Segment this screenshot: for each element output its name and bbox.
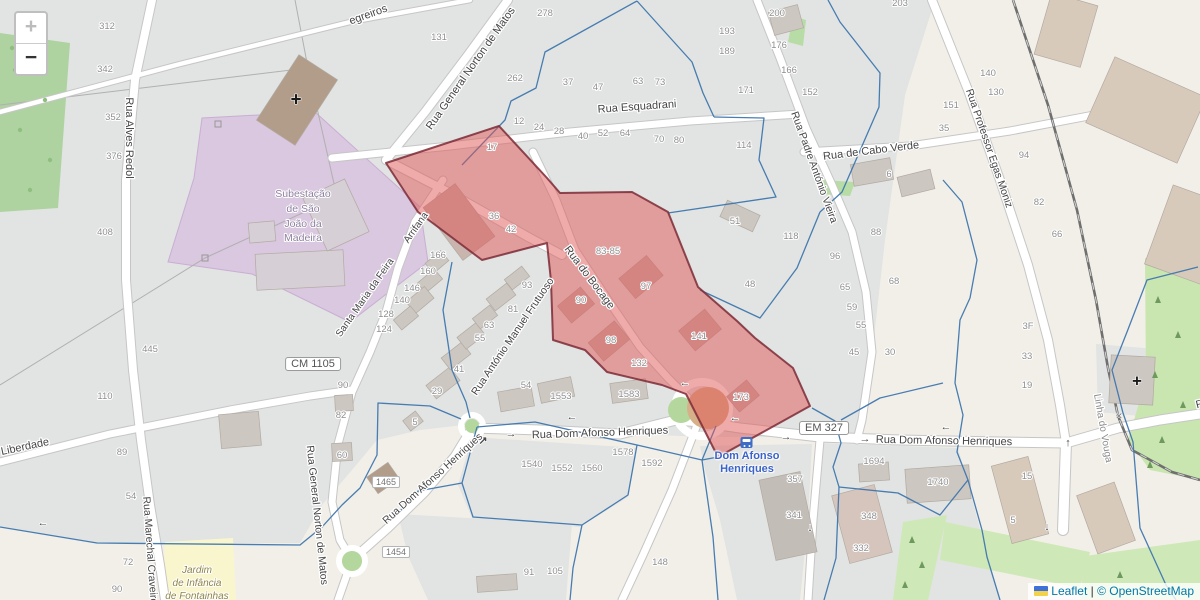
house-number: 36	[489, 211, 500, 222]
house-number: 146	[404, 283, 420, 294]
oneway-arrow-icon: →	[506, 428, 517, 440]
leaflet-link[interactable]: Leaflet	[1051, 584, 1087, 598]
house-number: 189	[719, 46, 735, 57]
house-number: 128	[378, 309, 394, 320]
house-number: 173	[733, 392, 749, 403]
house-number: 41	[454, 364, 465, 375]
street-name-label: Rua Dom Afonso Henriques	[876, 434, 1013, 448]
house-number: 73	[655, 77, 666, 88]
oneway-arrow-icon: ←	[38, 517, 49, 529]
oneway-arrow-icon: →	[860, 433, 871, 445]
orchard-tree-icon	[43, 98, 47, 102]
house-number: 65	[840, 282, 851, 293]
house-number: 47	[593, 82, 604, 93]
oneway-arrow-icon: ↓	[807, 522, 813, 534]
house-number: 332	[853, 543, 869, 554]
house-number: 82	[1034, 197, 1045, 208]
house-number: 45	[849, 347, 860, 358]
house-number: 1694	[863, 456, 884, 467]
house-number: 160	[420, 266, 436, 277]
house-number: 48	[745, 279, 756, 290]
house-number: 37	[563, 77, 574, 88]
house-number: 60	[337, 450, 348, 461]
house-number: 66	[1052, 229, 1063, 240]
oneway-arrow-icon: ←	[941, 421, 952, 433]
building	[219, 411, 262, 448]
house-number: 54	[126, 491, 137, 502]
house-number: 110	[97, 391, 112, 402]
house-number: 6	[886, 169, 891, 180]
route-badge-em327: EM 327	[799, 421, 849, 435]
house-number: 176	[771, 40, 787, 51]
house-number: 166	[781, 65, 797, 76]
building	[255, 250, 345, 291]
station-name-line1: Dom Afonso	[715, 450, 780, 463]
house-number: 89	[117, 447, 128, 458]
house-number: 33	[1022, 351, 1033, 362]
house-number: 118	[783, 231, 798, 242]
building	[476, 574, 517, 593]
oneway-arrow-icon: ←	[730, 412, 741, 424]
house-number: 114	[736, 140, 751, 151]
house-number: 5	[1010, 515, 1015, 526]
roundabout-island	[342, 551, 362, 571]
house-number: 88	[871, 227, 882, 238]
oneway-arrow-icon: ↑	[1065, 437, 1071, 449]
house-number: 80	[674, 135, 685, 146]
house-number: 28	[554, 126, 565, 137]
house-number: 193	[719, 26, 735, 37]
ukraine-flag-icon	[1034, 586, 1048, 596]
attribution-bar: Leaflet | © OpenStreetMap	[1028, 583, 1200, 600]
substation-name-label: Madeira	[284, 232, 322, 244]
house-number: 82	[336, 410, 347, 421]
house-number: 1552	[551, 463, 572, 474]
house-number: 68	[889, 276, 900, 287]
house-number: 342	[97, 64, 113, 75]
house-number: 200	[769, 8, 785, 19]
house-number: 131	[431, 32, 447, 43]
house-number: 278	[537, 8, 553, 19]
house-number: 130	[988, 87, 1004, 98]
house-number: 1560	[581, 463, 602, 474]
house-number: 1592	[641, 458, 662, 469]
osm-link[interactable]: © OpenStreetMap	[1097, 584, 1194, 598]
house-number: 1578	[612, 447, 633, 458]
house-number: 105	[547, 566, 563, 577]
kindergarten-name-label: Jardim	[181, 565, 212, 576]
house-number: 148	[652, 557, 668, 568]
route-badge-cm1105: CM 1105	[285, 357, 341, 371]
street-name-label: Rua Alves Redol	[123, 97, 135, 178]
house-number: 166	[430, 250, 446, 261]
address-plate-1454: 1454	[382, 546, 410, 558]
zoom-out-button[interactable]: −	[16, 44, 46, 74]
house-number: 1740	[927, 477, 948, 488]
train-icon	[741, 437, 753, 448]
house-number: 140	[394, 295, 410, 306]
kindergarten-name-label: de Fontainhas	[165, 591, 228, 600]
house-number: 12	[514, 116, 525, 127]
house-number: 262	[507, 73, 523, 84]
zoom-in-button[interactable]: +	[16, 13, 46, 44]
house-number: 132	[631, 358, 647, 369]
house-number: 348	[861, 511, 877, 522]
house-number: 81	[508, 304, 519, 315]
house-number: 55	[475, 333, 486, 344]
oneway-arrow-icon: ↓	[1044, 521, 1050, 533]
house-number: 40	[578, 131, 589, 142]
house-number: 3F	[1022, 321, 1033, 332]
house-number: 97	[641, 281, 652, 292]
house-number: 1553	[550, 391, 571, 402]
address-plate-1465: 1465	[372, 476, 400, 488]
house-number: 171	[738, 85, 754, 96]
church-cross-icon: +	[1132, 372, 1142, 391]
house-number: 1583	[618, 389, 639, 400]
house-number: 72	[123, 557, 134, 568]
house-number: 124	[376, 324, 392, 335]
attribution-separator: |	[1087, 584, 1097, 598]
house-number: 29	[432, 386, 443, 397]
house-number: 70	[654, 134, 665, 145]
building	[335, 395, 354, 412]
building	[248, 221, 276, 243]
house-number: 90	[576, 295, 587, 306]
map-canvas[interactable]: →←←←→→←↑↓↓↗←++✕Rua Alves RedolRua Genera…	[0, 0, 1200, 600]
map-app: →←←←→→←↑↓↓↗←++✕Rua Alves RedolRua Genera…	[0, 0, 1200, 600]
substation-name-label: de São	[286, 203, 319, 215]
house-number: 15	[1022, 471, 1033, 482]
house-number: 35	[939, 123, 950, 134]
house-number: 312	[99, 21, 115, 32]
house-number: 90	[112, 584, 123, 595]
oneway-arrow-icon: ←	[680, 377, 691, 389]
house-number: 63	[484, 320, 495, 331]
house-number: 341	[786, 510, 802, 521]
house-number: 140	[980, 68, 996, 79]
oneway-arrow-icon: →	[781, 431, 792, 443]
house-number: 152	[802, 87, 818, 98]
house-number: 94	[1019, 150, 1030, 161]
orchard-tree-icon	[48, 158, 52, 162]
house-number: 445	[142, 344, 158, 355]
house-number: 64	[620, 128, 631, 139]
house-number: 24	[534, 122, 545, 133]
road	[1063, 443, 1066, 530]
substation-name-label: Subestação	[275, 188, 331, 200]
house-number: 55	[856, 320, 867, 331]
house-number: 376	[106, 151, 122, 162]
house-number: 90	[338, 380, 349, 391]
house-number: 63	[633, 76, 644, 87]
house-number: 19	[1022, 380, 1033, 391]
house-number: 96	[830, 251, 841, 262]
house-number: 83-85	[596, 246, 620, 257]
kindergarten-name-label: de Infância	[173, 578, 222, 589]
house-number: 30	[885, 347, 896, 358]
house-number: 54	[521, 380, 532, 391]
house-number: 1540	[521, 459, 542, 470]
railway-crossing-icon: ✕	[1115, 411, 1123, 421]
station-label: Dom Afonso Henriques	[715, 437, 780, 475]
substation-name-label: João da	[284, 218, 322, 230]
house-number: 59	[847, 302, 858, 313]
church-cross-icon: +	[290, 89, 301, 110]
house-number: 151	[943, 100, 959, 111]
zoom-control: + −	[14, 11, 48, 76]
oneway-arrow-icon: ←	[567, 411, 578, 423]
house-number: 98	[606, 335, 617, 346]
house-number: 91	[524, 567, 535, 578]
station-name-line2: Henriques	[715, 463, 780, 476]
house-number: 352	[105, 112, 121, 123]
house-number: 357	[787, 474, 803, 485]
house-number: 203	[892, 0, 908, 9]
house-number: 51	[730, 216, 741, 227]
house-number: 42	[506, 224, 517, 235]
house-number: 52	[598, 128, 609, 139]
house-number: 408	[97, 227, 113, 238]
orchard-tree-icon	[18, 128, 22, 132]
house-number: 141	[691, 331, 707, 342]
house-number: 17	[487, 142, 498, 153]
house-number: 5	[412, 417, 417, 428]
house-number: 93	[522, 280, 533, 291]
orchard-tree-icon	[28, 188, 32, 192]
